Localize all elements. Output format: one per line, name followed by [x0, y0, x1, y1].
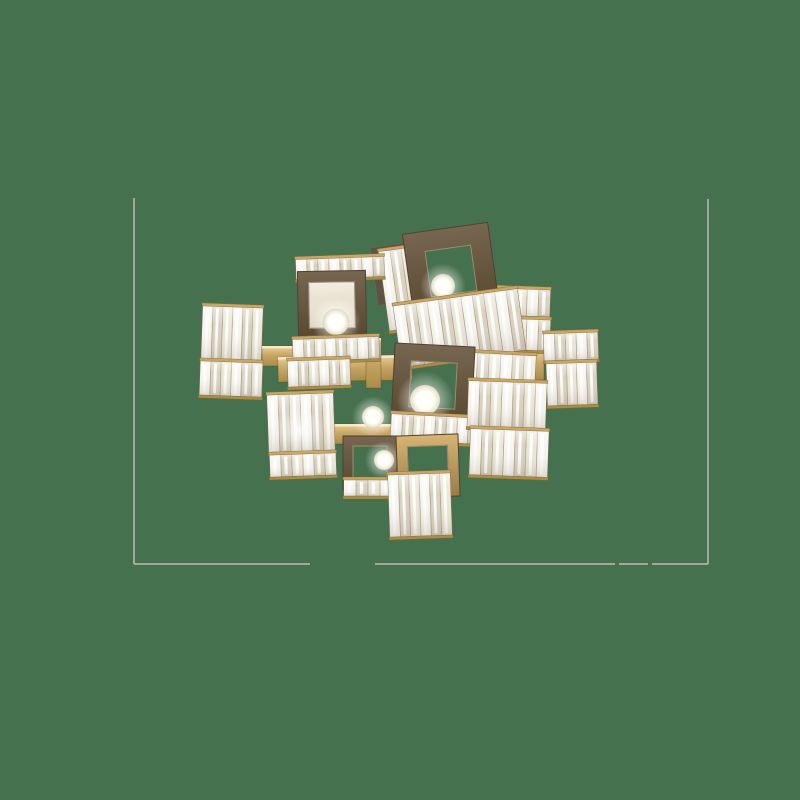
chandelier-product-image	[0, 0, 800, 800]
crystal-prism-band	[200, 303, 264, 365]
crystal-prism-band	[198, 358, 263, 400]
crystal-prism-band	[466, 378, 548, 433]
crystal-prism-band	[343, 477, 393, 499]
crystal-prism-band	[387, 470, 453, 540]
crystal-prism-band	[269, 450, 338, 480]
crystal-prism-band	[468, 426, 550, 481]
crystal-prism-band	[286, 356, 351, 390]
product-photo-canvas	[0, 0, 800, 800]
crystal-prism-band	[545, 359, 599, 409]
bulb-glow	[275, 406, 323, 454]
crystal-prism-band	[542, 329, 599, 364]
light-bulb	[352, 396, 394, 438]
